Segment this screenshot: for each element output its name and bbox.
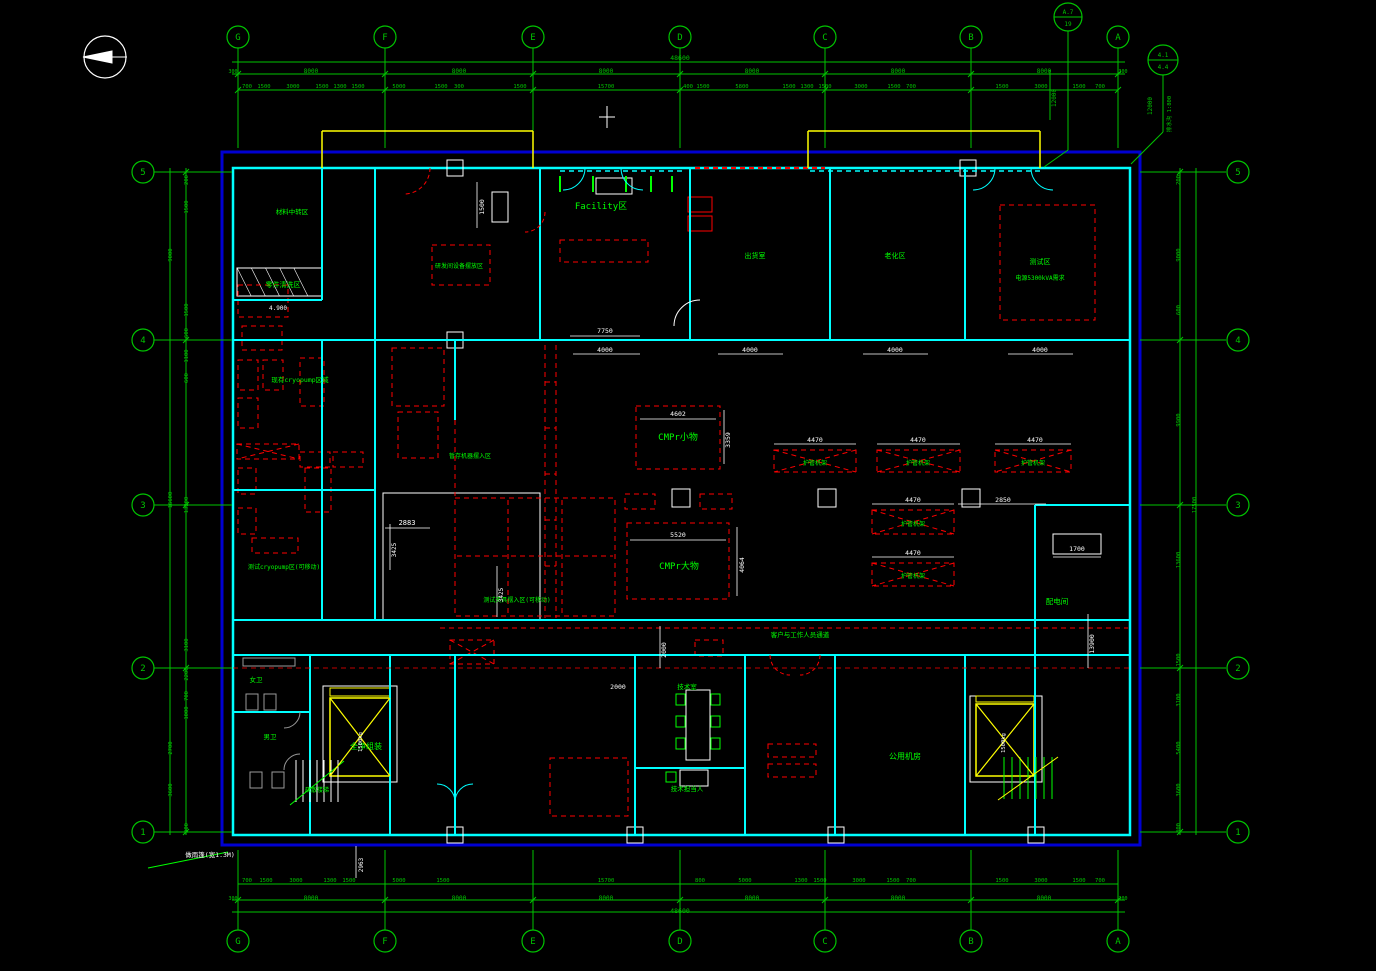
dim-top: 1500 — [1072, 84, 1085, 90]
plan-label: 疏散楼梯 — [305, 786, 329, 794]
plan-rect — [676, 694, 685, 705]
dim-bottom: 700 — [242, 878, 252, 884]
door-arc — [770, 655, 790, 675]
plan-label: 8000 — [1037, 895, 1052, 902]
dim-top: 1500 — [818, 84, 831, 90]
dim-top: 3000 — [286, 84, 299, 90]
plan-label: 测试cryopump区(可移动) — [248, 563, 320, 571]
grid-col-label: F — [382, 33, 387, 43]
dim-top: 700 — [242, 84, 252, 90]
plan-rect — [625, 494, 655, 509]
plan-label: 4470 — [905, 549, 921, 557]
dim-bottom: 1500 — [813, 878, 826, 884]
dim-vertical: 9000 — [1176, 248, 1182, 261]
dim-bottom: 1500 — [995, 878, 1008, 884]
plan-label: 现有cryopump区域 — [271, 375, 329, 384]
dim-top: 1500 — [696, 84, 709, 90]
plan-label: 8000 — [891, 68, 906, 75]
door-arc — [800, 655, 820, 675]
dim-vertical: 3100 — [184, 638, 190, 651]
dim-bottom: 1500 — [886, 878, 899, 884]
grid-row-label: 2 — [1235, 664, 1240, 674]
plan-label: 1700 — [1069, 545, 1085, 553]
door-arc — [455, 784, 473, 802]
plan-label: 8000 — [891, 895, 906, 902]
grid-col-label: E — [530, 937, 535, 947]
grid-col-label: A — [1115, 937, 1121, 947]
dim-vertical: 9000 — [168, 248, 174, 261]
dim-vertical: 700 — [184, 691, 190, 701]
dim-vertical: 1500 — [1176, 653, 1182, 666]
dim-top: 700 — [906, 84, 916, 90]
callout-top: A.7 — [1063, 9, 1074, 16]
plan-rect — [695, 640, 723, 656]
plan-label: 配电间 — [1046, 596, 1069, 606]
plan-rect — [392, 348, 444, 406]
plan-label: 1500kg — [358, 732, 364, 752]
floor-plan-drawing: 材料中转区零件清洗区研发间设备摆放区Facility区出货室老化区测试区电源53… — [0, 0, 1376, 971]
grid-row-label: 4 — [1235, 336, 1240, 346]
plan-rect — [330, 688, 390, 696]
dim-top: 1500 — [995, 84, 1008, 90]
plan-label: 8000 — [599, 68, 614, 75]
grid-row-label: 1 — [140, 828, 145, 838]
grid-col-label: F — [382, 937, 387, 947]
plan-label: 公用机房 — [889, 751, 921, 761]
door-arc — [525, 212, 545, 232]
plan-label: 2883 — [399, 519, 416, 527]
plan-rect — [688, 197, 712, 212]
plan-label: 护管机架 — [803, 459, 827, 467]
plan-label: 8000 — [745, 68, 760, 75]
plan-label: 4000 — [887, 346, 903, 354]
plan-rect — [238, 508, 256, 534]
plan-rect — [238, 398, 258, 428]
plan-rect — [242, 326, 282, 350]
dim-bottom: 5000 — [392, 878, 405, 884]
plan-label: 1500 — [478, 199, 486, 215]
grid-col-label: G — [235, 33, 240, 43]
plan-label: 电源5300kVA需求 — [1015, 274, 1064, 282]
plan-label: CMPr小物 — [658, 431, 698, 443]
dim-bottom: 15700 — [598, 878, 615, 884]
plan-rect — [711, 716, 720, 727]
plan-rect — [252, 538, 298, 553]
plan-line — [1131, 132, 1163, 164]
dim-vertical: 200 — [1176, 175, 1182, 185]
plan-rect — [976, 696, 1034, 702]
dim-vertical: 9900 — [1176, 413, 1182, 426]
grid-col-label: E — [530, 33, 535, 43]
dim-vertical: 13600 — [1176, 552, 1182, 569]
dim-bottom: 3000 — [289, 878, 302, 884]
plan-label: 做雨篷(宽1.3M) — [185, 850, 234, 859]
plan-label: 2000 — [660, 642, 668, 658]
dim-top: 3000 — [1034, 84, 1047, 90]
plan-label: Facility区 — [575, 201, 627, 212]
dim-top: 1500 — [257, 84, 270, 90]
plan-label: 4064 — [738, 557, 746, 573]
dim-vertical: 1500 — [184, 303, 190, 316]
plan-label: 48600 — [670, 907, 690, 915]
plan-label: 护管机架 — [1021, 459, 1045, 467]
plan-label: 技术担当人 — [671, 784, 704, 793]
plan-label: 4470 — [807, 436, 823, 444]
dim-vertical: 3100 — [1176, 693, 1182, 706]
plan-rect — [666, 772, 676, 782]
plan-rect — [768, 764, 816, 777]
plan-rect — [672, 489, 690, 507]
plan-rect — [238, 360, 258, 390]
dim-vertical: 1000 — [184, 706, 190, 719]
dim-bottom: 700 — [906, 878, 916, 884]
plan-label: 7750 — [597, 327, 613, 335]
dim-bottom: 700 — [1095, 878, 1105, 884]
grid-row-label: 1 — [1235, 828, 1240, 838]
plan-rect — [711, 738, 720, 749]
dim-bottom: 3000 — [1034, 878, 1047, 884]
dim-top: 400 — [683, 84, 693, 90]
dim-bottom: 3000 — [852, 878, 865, 884]
plan-label: 护管机架 — [901, 572, 925, 580]
dim-vertical: 1500 — [184, 200, 190, 213]
dim-top: 1500 — [434, 84, 447, 90]
plan-label: 5520 — [670, 531, 686, 539]
plan-rect — [818, 489, 836, 507]
plan-label: 测试区 — [1030, 257, 1051, 266]
plan-label: 4470 — [1027, 436, 1043, 444]
callout-bottom: 19 — [1064, 21, 1072, 28]
plan-rect — [246, 694, 258, 710]
plan-rect — [676, 716, 685, 727]
dim-bottom: 800 — [695, 878, 705, 884]
plan-rect — [333, 452, 363, 467]
dim-top: 700 — [1095, 84, 1105, 90]
dim-vertical: 3600 — [1176, 783, 1182, 796]
plan-label: 老化区 — [885, 251, 906, 260]
plan-label: 零件清洗区 — [266, 280, 301, 289]
plan-label: CMPr大物 — [659, 560, 699, 572]
dim-vertical: 600 — [1176, 305, 1182, 315]
dim-top: 1300 — [800, 84, 813, 90]
dim-vertical: 1100 — [184, 349, 190, 362]
plan-rect — [676, 738, 685, 749]
cross-line — [450, 640, 494, 664]
plan-label: 12000 — [1147, 97, 1154, 115]
grid-col-label: B — [968, 937, 973, 947]
plan-label: 客户与工作人员通道 — [771, 630, 830, 639]
dim-top: 1500 — [351, 84, 364, 90]
dim-top: 15700 — [598, 84, 615, 90]
plan-rect — [680, 770, 708, 786]
plan-label: 8000 — [745, 895, 760, 902]
plan-rect — [492, 192, 508, 222]
plan-rect — [300, 452, 330, 467]
grid-row-label: 5 — [140, 168, 145, 178]
plan-label: 8000 — [452, 68, 467, 75]
plan-label: 4.900 — [269, 305, 287, 312]
dim-bottom: 5000 — [738, 878, 751, 884]
plan-rect — [250, 772, 262, 788]
door-arc — [284, 754, 300, 770]
plan-label: 4602 — [670, 410, 686, 418]
dim-bottom: 1300 — [794, 878, 807, 884]
plan-label: 护管机架 — [901, 520, 925, 528]
plan-rect — [450, 640, 494, 664]
plan-label: 女卫 — [250, 675, 264, 684]
dim-vertical: 16600 — [168, 492, 174, 509]
cross-line — [450, 640, 494, 664]
plan-label: 2850 — [995, 496, 1011, 504]
plan-label: 4470 — [910, 436, 926, 444]
plan-label: 8000 — [1037, 68, 1052, 75]
plan-label: 3425 — [498, 587, 505, 602]
dim-top: 5000 — [392, 84, 405, 90]
grid-row-label: 3 — [140, 501, 145, 511]
hatch-line — [251, 268, 265, 296]
grid-col-label: A — [1115, 33, 1121, 43]
plan-label: 护管机架 — [906, 459, 930, 467]
plan-label: 1500kg — [1001, 733, 1007, 753]
door-arc — [83, 51, 112, 63]
dim-vertical: 3600 — [168, 783, 174, 796]
grid-col-label: D — [677, 937, 682, 947]
dim-vertical: 600 — [184, 373, 190, 383]
grid-row-label: 5 — [1235, 168, 1240, 178]
plan-rect — [768, 744, 816, 757]
grid-row-label: 2 — [140, 664, 145, 674]
plan-rect — [711, 694, 720, 705]
plan-label: 出货室 — [745, 251, 766, 260]
plan-rect — [264, 694, 276, 710]
plan-label: 3359 — [724, 432, 732, 448]
plan-label: 12000 — [1051, 89, 1058, 107]
door-arc — [284, 712, 300, 728]
plan-label: 4470 — [905, 496, 921, 504]
plan-label: 48600 — [670, 54, 690, 62]
cad-viewport[interactable]: 材料中转区零件清洗区研发间设备摆放区Facility区出货室老化区测试区电源53… — [0, 0, 1376, 971]
dim-top: 3000 — [854, 84, 867, 90]
dim-vertical: 17500 — [1192, 497, 1198, 514]
door-arc — [404, 168, 430, 194]
dim-top: 1500 — [513, 84, 526, 90]
dim-vertical: 600 — [184, 328, 190, 338]
dim-vertical: 2700 — [168, 741, 174, 754]
callout-bottom: 4.4 — [1158, 64, 1169, 71]
dim-top: 1500 — [315, 84, 328, 90]
plan-rect — [560, 240, 648, 262]
dim-top: 1300 — [333, 84, 346, 90]
grid-col-label: B — [968, 33, 973, 43]
grid-row-label: 4 — [140, 336, 145, 346]
plan-rect — [700, 494, 732, 509]
plan-label: 300 — [1118, 896, 1127, 902]
door-arc — [437, 784, 455, 802]
plan-label: 材料中转区 — [276, 207, 309, 216]
dim-bottom: 1500 — [1072, 878, 1085, 884]
dim-vertical: 5400 — [1176, 741, 1182, 754]
dim-vertical: 13200 — [184, 497, 190, 514]
plan-label: 技术室 — [677, 682, 697, 691]
plan-label: 4000 — [597, 346, 613, 354]
dim-vertical: 200 — [184, 175, 190, 185]
grid-col-label: D — [677, 33, 682, 43]
plan-rect — [688, 216, 712, 231]
grid-col-label: C — [822, 937, 827, 947]
door-arc — [1031, 168, 1053, 190]
door-arc — [674, 300, 700, 326]
plan-label: 暂存机器摆入区 — [449, 452, 491, 460]
plan-rect — [272, 772, 284, 788]
dim-bottom: 1500 — [259, 878, 272, 884]
plan-label: 2963 — [358, 857, 365, 872]
dim-bottom: 1500 — [436, 878, 449, 884]
plan-label: 研发间设备摆放区 — [435, 262, 483, 270]
dim-bottom: 1500 — [342, 878, 355, 884]
plan-rect — [263, 360, 283, 390]
plan-rect — [550, 758, 628, 816]
plan-label: 3425 — [391, 542, 398, 557]
plan-label: 4000 — [1032, 346, 1048, 354]
plan-label: 300 — [228, 69, 237, 75]
hatch-line — [237, 268, 251, 296]
plan-label: 2000 — [610, 683, 626, 691]
grid-col-label: C — [822, 33, 827, 43]
plan-label: 8000 — [304, 68, 319, 75]
plan-label: 8000 — [304, 895, 319, 902]
dim-bottom: 1300 — [323, 878, 336, 884]
plan-rect — [398, 412, 438, 458]
plan-label: 8000 — [452, 895, 467, 902]
dim-top: 1500 — [887, 84, 900, 90]
dim-top: 1500 — [782, 84, 795, 90]
plan-label: 排水沟 1:800 — [1165, 96, 1173, 132]
dim-top: 5800 — [735, 84, 748, 90]
plan-label: 测试夹具摆入区(可移动) — [483, 596, 550, 604]
grid-col-label: G — [235, 937, 240, 947]
plan-label: 男卫 — [264, 733, 278, 741]
plan-label: 4000 — [742, 346, 758, 354]
dim-top: 300 — [454, 84, 464, 90]
grid-row-label: 3 — [1235, 501, 1240, 511]
callout-top: 4.1 — [1158, 52, 1169, 59]
plan-label: 8000 — [599, 895, 614, 902]
plan-rect — [243, 658, 295, 666]
plan-label: 300 — [228, 896, 237, 902]
plan-label: 13900 — [1088, 634, 1096, 654]
plan-rect — [686, 690, 710, 760]
plan-label: 全净组装 — [350, 741, 382, 751]
